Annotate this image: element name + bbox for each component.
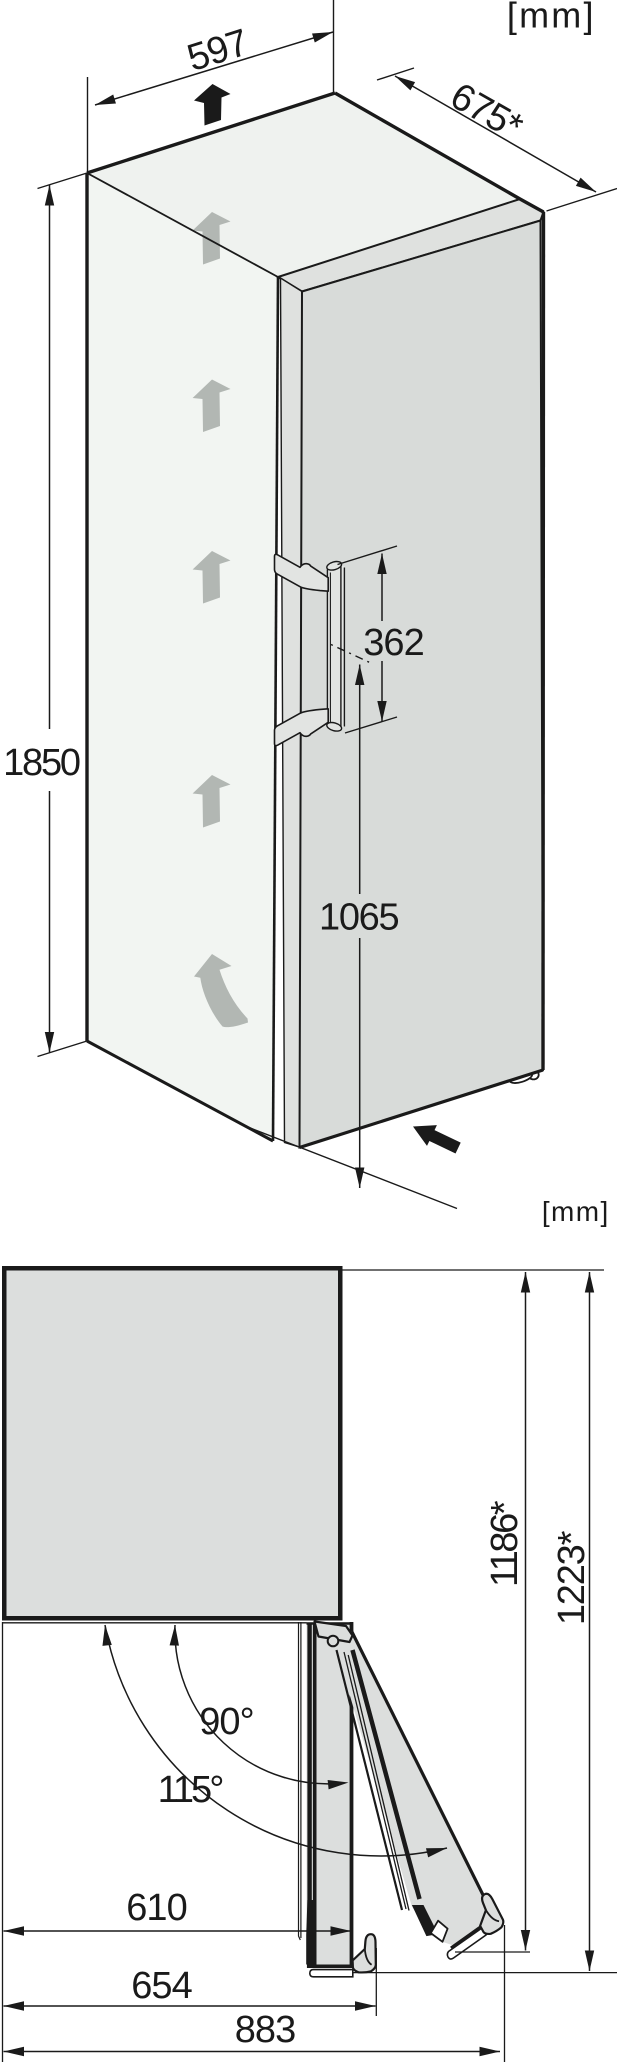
svg-text:[mm]: [mm] [542, 1196, 610, 1227]
svg-text:[mm]: [mm] [507, 0, 596, 36]
svg-text:362: 362 [363, 622, 423, 664]
svg-text:1850: 1850 [3, 742, 80, 784]
svg-text:1186*: 1186* [484, 1500, 526, 1587]
svg-text:883: 883 [235, 2009, 295, 2051]
svg-text:115°: 115° [158, 1769, 223, 1811]
svg-text:90°: 90° [199, 1701, 253, 1743]
svg-text:610: 610 [126, 1887, 186, 1929]
svg-text:597: 597 [182, 22, 252, 80]
svg-text:1065: 1065 [319, 897, 399, 939]
svg-text:654: 654 [131, 1965, 192, 2007]
svg-text:1223*: 1223* [551, 1530, 593, 1625]
svg-text:675*: 675* [443, 75, 529, 149]
